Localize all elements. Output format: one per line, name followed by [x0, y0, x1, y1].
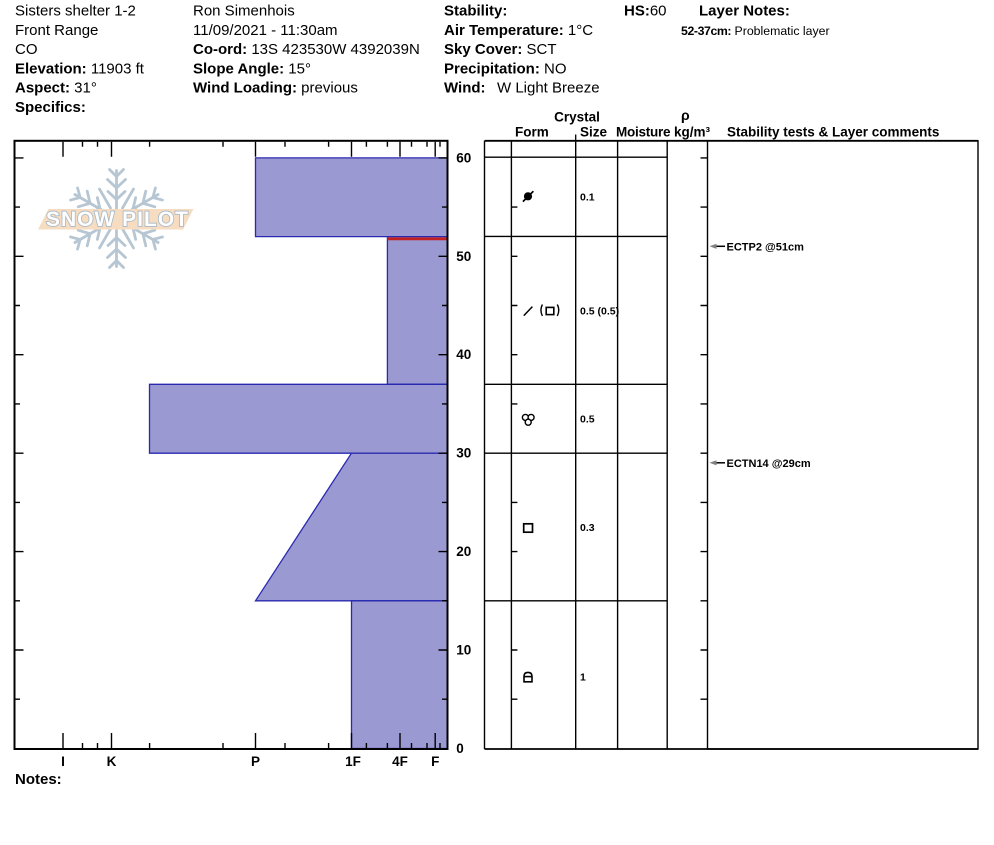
svg-text:Layer Notes:: Layer Notes:: [699, 3, 790, 20]
svg-text:Ron Simenhois: Ron Simenhois: [193, 3, 295, 20]
svg-text:ECTN14 @29cm: ECTN14 @29cm: [727, 458, 811, 470]
svg-text:Form: Form: [515, 125, 549, 140]
svg-text:10: 10: [456, 643, 471, 658]
svg-text:Aspect: 31°: Aspect: 31°: [15, 80, 97, 97]
svg-text:60: 60: [456, 150, 471, 165]
svg-text:11/09/2021 - 11:30am: 11/09/2021 - 11:30am: [193, 22, 338, 39]
svg-text:40: 40: [456, 347, 471, 362]
svg-text:Wind:W Light Breeze: Wind:W Light Breeze: [444, 80, 600, 97]
svg-text:0.5: 0.5: [580, 414, 595, 426]
svg-text:Stability tests & Layer commen: Stability tests & Layer comments: [727, 125, 939, 140]
svg-text:0: 0: [456, 741, 464, 756]
svg-text:Sisters shelter 1-2: Sisters shelter 1-2: [15, 3, 136, 20]
svg-text:0.3: 0.3: [580, 522, 595, 534]
svg-text:HS:60: HS:60: [624, 3, 667, 20]
svg-text:Front Range: Front Range: [15, 22, 98, 39]
svg-text:K: K: [107, 754, 117, 769]
svg-text:4F: 4F: [392, 754, 408, 769]
svg-text:Specifics:: Specifics:: [15, 99, 86, 116]
svg-text:Co-ord: 13S 423530W 4392039N: Co-ord: 13S 423530W 4392039N: [193, 41, 420, 58]
svg-text:F: F: [431, 754, 439, 769]
svg-text:P: P: [251, 754, 260, 769]
svg-text:Sky Cover: SCT: Sky Cover: SCT: [444, 41, 557, 58]
svg-text:Slope Angle: 15°: Slope Angle: 15°: [193, 60, 311, 77]
svg-text:50: 50: [456, 249, 471, 264]
svg-text:1: 1: [580, 672, 586, 684]
svg-text:Crystal: Crystal: [554, 110, 600, 125]
svg-text:Elevation: 11903 ft: Elevation: 11903 ft: [15, 60, 145, 77]
svg-text:0.1: 0.1: [580, 191, 595, 203]
svg-text:ρ: ρ: [681, 107, 690, 123]
svg-text:Stability:: Stability:: [444, 3, 507, 20]
svg-text:Precipitation: NO: Precipitation: NO: [444, 60, 567, 77]
svg-text:Wind Loading: previous: Wind Loading: previous: [193, 80, 358, 97]
svg-text:kg/m³: kg/m³: [674, 125, 711, 140]
svg-text:Notes:: Notes:: [15, 771, 62, 788]
svg-text:30: 30: [456, 446, 471, 461]
svg-text:Size: Size: [580, 125, 608, 140]
svg-text:Moisture: Moisture: [616, 125, 671, 140]
svg-text:I: I: [61, 754, 65, 769]
svg-text:0.5 (0.5): 0.5 (0.5): [580, 306, 619, 318]
svg-text:SNOW PILOT: SNOW PILOT: [46, 208, 189, 231]
svg-text:52-37cm: Problematic layer: 52-37cm: Problematic layer: [681, 24, 830, 38]
svg-text:20: 20: [456, 544, 471, 559]
svg-text:ECTP2 @51cm: ECTP2 @51cm: [727, 242, 805, 254]
svg-text:CO: CO: [15, 41, 38, 58]
svg-text:Air Temperature: 1°C: Air Temperature: 1°C: [444, 22, 593, 39]
svg-text:1F: 1F: [345, 754, 361, 769]
